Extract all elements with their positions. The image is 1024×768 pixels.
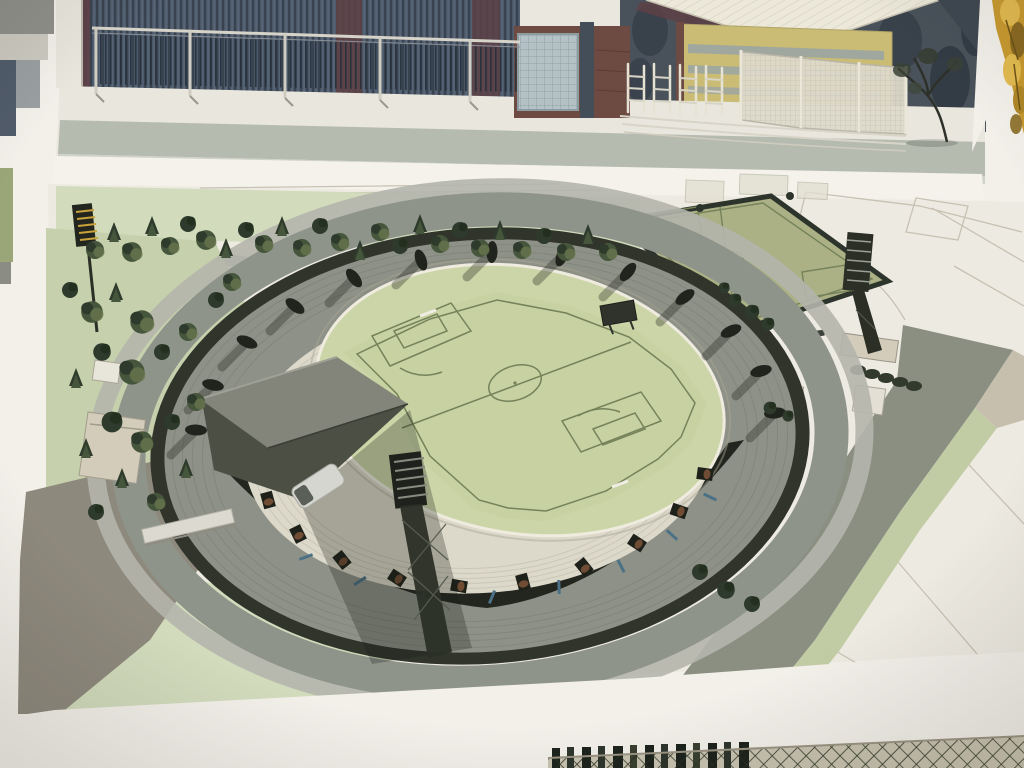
sign-board-rendering <box>0 0 1024 768</box>
photo-of-sign-board <box>0 0 1024 768</box>
photo-vignette <box>0 0 1024 768</box>
